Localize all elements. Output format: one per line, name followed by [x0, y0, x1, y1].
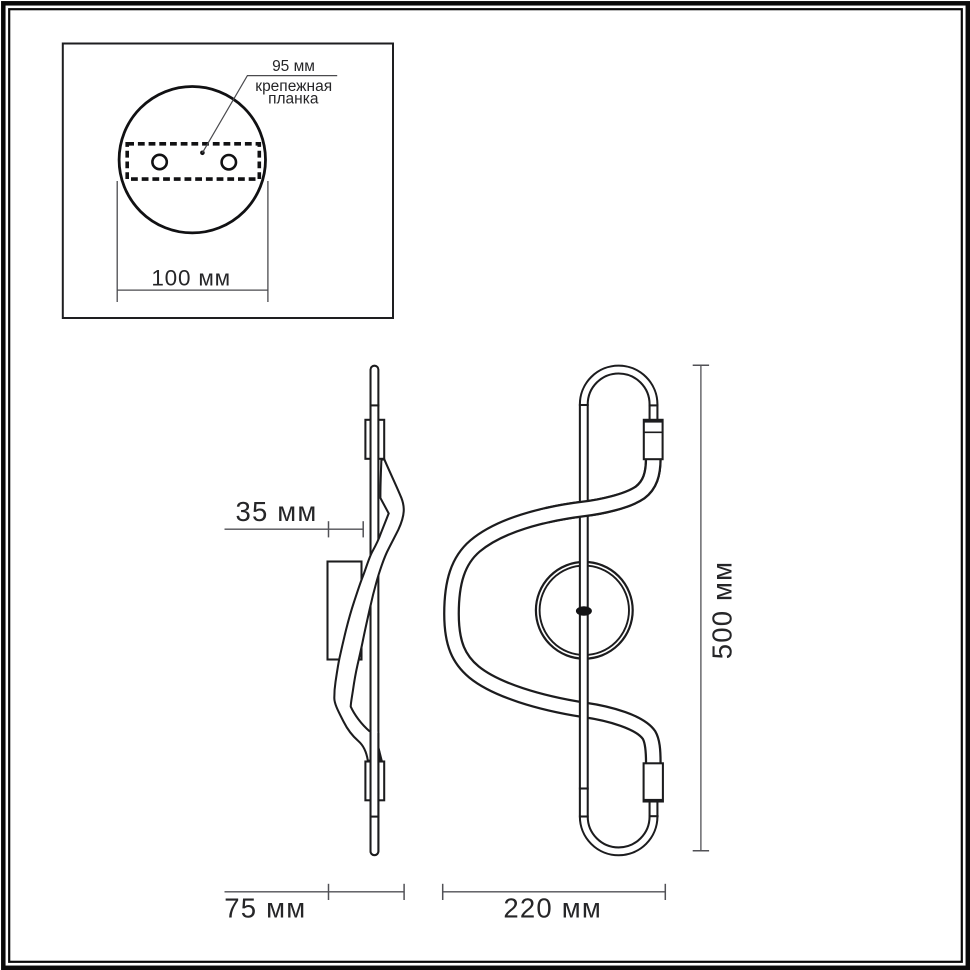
svg-text:35 мм: 35 мм — [235, 496, 317, 527]
svg-text:220 мм: 220 мм — [503, 893, 602, 924]
svg-text:500 мм: 500 мм — [707, 561, 738, 660]
svg-text:планка: планка — [268, 90, 319, 107]
svg-text:100 мм: 100 мм — [151, 266, 231, 291]
svg-text:75 мм: 75 мм — [224, 893, 306, 924]
svg-text:95 мм: 95 мм — [272, 58, 315, 75]
